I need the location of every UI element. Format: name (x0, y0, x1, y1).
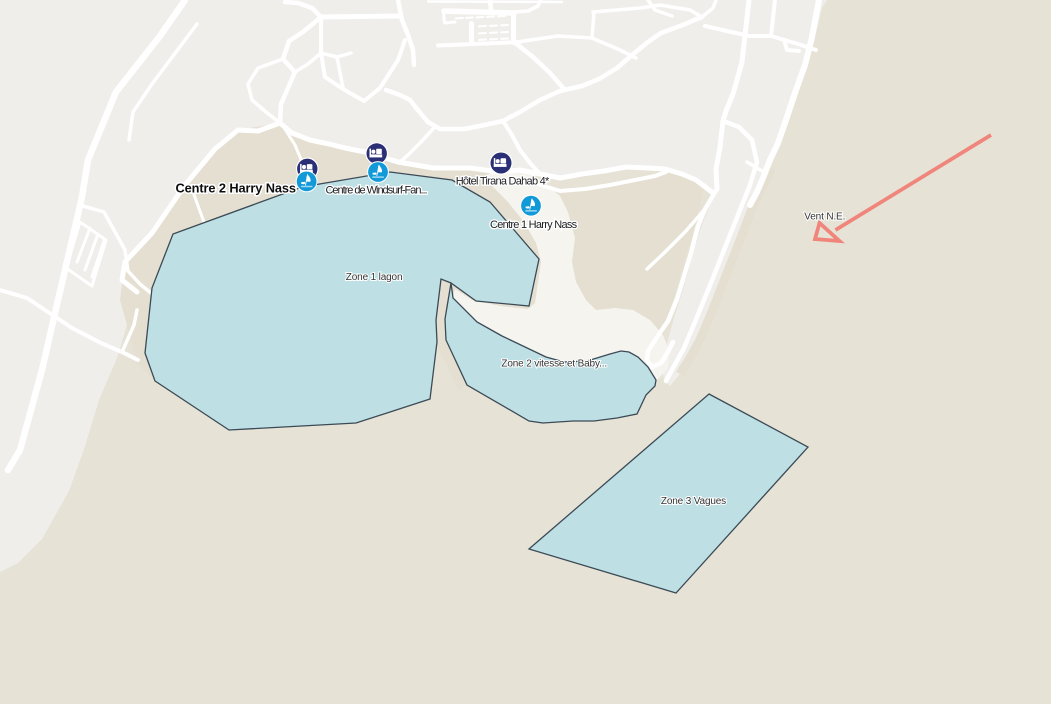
svg-text:Vent N.E.: Vent N.E. (804, 212, 845, 223)
svg-text:Zone 1 lagon: Zone 1 lagon (346, 272, 403, 283)
svg-text:Centre 1 Harry Nass: Centre 1 Harry Nass (490, 219, 578, 231)
svg-text:Zone 3 Vagues: Zone 3 Vagues (661, 496, 726, 507)
svg-text:Zone 2 vitesse et Baby...: Zone 2 vitesse et Baby... (501, 358, 607, 369)
svg-text:Centre 2 Harry Nass: Centre 2 Harry Nass (176, 181, 296, 196)
svg-text:Centre de Windsurf-Fan...: Centre de Windsurf-Fan... (326, 185, 428, 197)
svg-text:Hôtel Tirana Dahab 4*: Hôtel Tirana Dahab 4* (456, 176, 550, 188)
